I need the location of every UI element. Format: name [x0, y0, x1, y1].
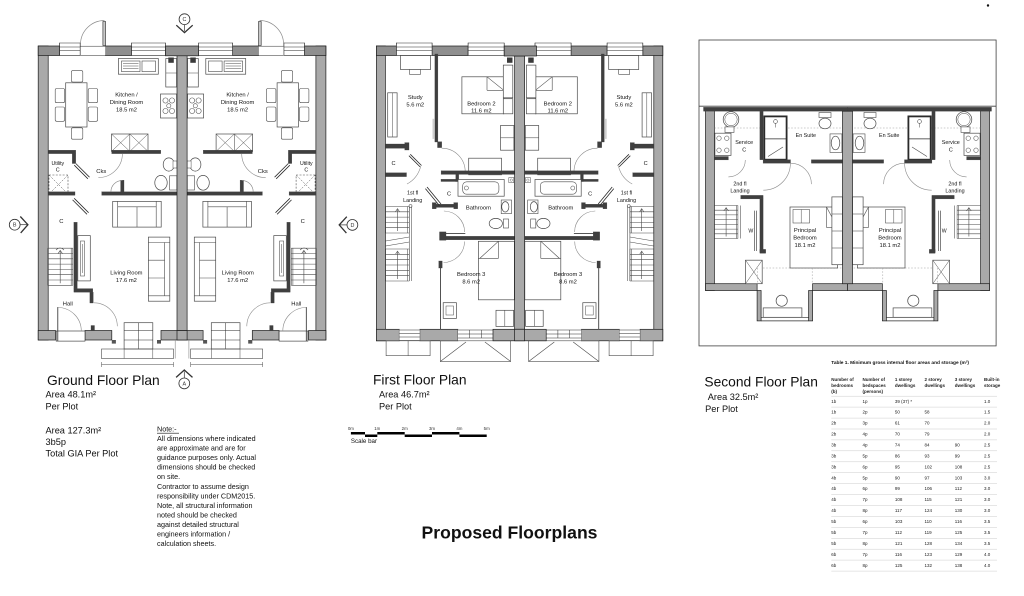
svg-text:4p: 4p [863, 432, 869, 437]
svg-text:Bedroom: Bedroom [878, 236, 902, 242]
svg-text:123: 123 [925, 552, 933, 557]
svg-text:4b: 4b [831, 508, 837, 513]
svg-text:4p: 4p [863, 443, 869, 448]
svg-text:70: 70 [895, 432, 901, 437]
svg-text:Service: Service [942, 140, 960, 146]
svg-text:5p: 5p [863, 475, 869, 480]
svg-text:Landing: Landing [403, 198, 422, 204]
svg-text:calculation sheets.: calculation sheets. [157, 539, 216, 548]
svg-text:1 storey: 1 storey [895, 377, 913, 382]
svg-text:79: 79 [925, 432, 931, 437]
svg-text:5b: 5b [831, 519, 837, 524]
svg-text:84: 84 [925, 443, 931, 448]
svg-text:116: 116 [955, 519, 963, 524]
svg-text:4b: 4b [831, 475, 837, 480]
svg-text:2m: 2m [402, 426, 408, 431]
svg-text:Study: Study [408, 95, 423, 101]
svg-text:Kitchen /: Kitchen / [115, 93, 138, 99]
svg-text:5m: 5m [484, 426, 490, 431]
svg-text:117: 117 [895, 508, 903, 513]
svg-text:121: 121 [955, 497, 963, 502]
svg-text:5b: 5b [831, 541, 837, 546]
svg-text:3p: 3p [863, 421, 869, 426]
svg-text:Bedroom 2: Bedroom 2 [544, 101, 572, 107]
svg-text:8p: 8p [863, 508, 869, 513]
svg-text:124: 124 [925, 508, 933, 513]
svg-text:C: C [949, 147, 953, 153]
svg-text:Living Room: Living Room [110, 271, 142, 277]
svg-text:3m: 3m [429, 426, 435, 431]
svg-text:4.0: 4.0 [984, 552, 991, 557]
svg-text:7p: 7p [863, 530, 869, 535]
svg-text:Principal: Principal [879, 228, 901, 234]
svg-text:93: 93 [925, 453, 931, 458]
svg-text:D: D [350, 223, 354, 229]
svg-text:5.6 m2: 5.6 m2 [615, 102, 633, 108]
svg-text:6p: 6p [863, 486, 869, 491]
svg-text:11.6 m2: 11.6 m2 [471, 109, 492, 115]
svg-text:1.5: 1.5 [984, 410, 991, 415]
svg-text:1b: 1b [831, 399, 837, 404]
svg-text:Hall: Hall [291, 302, 301, 308]
svg-text:Area 48.1m²: Area 48.1m² [46, 390, 97, 400]
svg-text:Bedroom 3: Bedroom 3 [554, 272, 582, 278]
svg-text:90: 90 [955, 443, 961, 448]
svg-text:3.5: 3.5 [984, 530, 991, 535]
svg-text:5p: 5p [863, 453, 869, 458]
svg-text:1.0: 1.0 [984, 399, 991, 404]
svg-text:are approximate and are for: are approximate and are for [157, 444, 246, 453]
svg-text:18.1 m2: 18.1 m2 [795, 243, 816, 249]
svg-text:18.5 m2: 18.5 m2 [227, 108, 248, 114]
svg-text:6p: 6p [863, 519, 869, 524]
svg-text:4m: 4m [456, 426, 462, 431]
svg-text:5b: 5b [831, 530, 837, 535]
svg-text:C: C [644, 161, 648, 167]
svg-text:3.5: 3.5 [984, 541, 991, 546]
svg-text:3.5: 3.5 [984, 519, 991, 524]
svg-text:Total GIA Per Plot: Total GIA Per Plot [46, 449, 119, 459]
svg-text:1m: 1m [374, 426, 380, 431]
svg-text:Note:-: Note:- [157, 425, 177, 434]
svg-text:C: C [304, 168, 308, 174]
svg-text:102: 102 [925, 464, 933, 469]
svg-text:1b: 1b [831, 410, 837, 415]
svg-text:11.6 m2: 11.6 m2 [548, 109, 569, 115]
svg-text:Bedroom 2: Bedroom 2 [467, 101, 495, 107]
svg-text:4b: 4b [831, 497, 837, 502]
svg-text:2.5: 2.5 [984, 453, 991, 458]
svg-text:99: 99 [955, 453, 961, 458]
svg-text:(b): (b) [831, 389, 837, 394]
svg-text:132: 132 [925, 563, 933, 568]
svg-text:6b: 6b [831, 563, 837, 568]
svg-text:2 storey: 2 storey [925, 377, 943, 382]
svg-text:C: C [391, 161, 395, 167]
svg-text:74: 74 [895, 443, 901, 448]
svg-text:bedrooms: bedrooms [831, 383, 853, 388]
svg-text:2.5: 2.5 [984, 443, 991, 448]
svg-text:99: 99 [895, 486, 901, 491]
svg-text:En Suite: En Suite [796, 133, 816, 139]
svg-text:95: 95 [895, 464, 901, 469]
svg-text:engineers information /: engineers information / [157, 530, 230, 539]
svg-text:First Floor Plan: First Floor Plan [373, 373, 467, 388]
svg-text:guidance purposes only. Actual: guidance purposes only. Actual [157, 453, 256, 462]
svg-text:8p: 8p [863, 563, 869, 568]
svg-text:(persons): (persons) [863, 389, 884, 394]
svg-text:39 (37) *: 39 (37) * [895, 399, 913, 404]
svg-text:Per Plot: Per Plot [705, 404, 738, 414]
svg-text:1st fl: 1st fl [621, 191, 632, 197]
svg-text:8.6 m2: 8.6 m2 [559, 279, 577, 285]
svg-text:Note, all structural informati: Note, all structural information [157, 501, 252, 510]
svg-text:110: 110 [925, 519, 933, 524]
svg-text:116: 116 [895, 552, 903, 557]
svg-text:4b: 4b [831, 486, 837, 491]
svg-text:61: 61 [895, 421, 901, 426]
svg-text:17.6 m2: 17.6 m2 [227, 278, 248, 284]
svg-text:All dimensions where indicated: All dimensions where indicated [157, 434, 256, 443]
svg-text:Utility: Utility [300, 161, 313, 167]
svg-text:storage: storage [984, 383, 1001, 388]
svg-text:Landing: Landing [730, 189, 749, 195]
svg-text:86: 86 [895, 453, 901, 458]
svg-text:En Suite: En Suite [879, 133, 899, 139]
svg-text:8.6 m2: 8.6 m2 [462, 279, 480, 285]
svg-text:90: 90 [895, 475, 901, 480]
svg-text:Cks: Cks [96, 169, 106, 175]
svg-text:17.6 m2: 17.6 m2 [116, 278, 137, 284]
svg-text:3.0: 3.0 [984, 475, 991, 480]
svg-text:6b: 6b [831, 552, 837, 557]
svg-text:3b: 3b [831, 464, 837, 469]
svg-text:1p: 1p [863, 399, 869, 404]
svg-text:on site.: on site. [157, 472, 180, 481]
svg-text:Table 1. Minimum gross interna: Table 1. Minimum gross internal floor ar… [831, 360, 969, 366]
svg-text:C: C [588, 192, 592, 198]
svg-text:W: W [748, 228, 753, 234]
svg-text:112: 112 [895, 530, 903, 535]
svg-text:4.0: 4.0 [984, 563, 991, 568]
svg-text:Cks: Cks [258, 169, 268, 175]
svg-text:2b: 2b [831, 432, 837, 437]
svg-text:2.5: 2.5 [984, 464, 991, 469]
svg-text:0m: 0m [348, 426, 354, 431]
svg-text:C: C [447, 192, 451, 198]
svg-text:A: A [182, 381, 186, 387]
svg-text:134: 134 [955, 541, 963, 546]
svg-text:121: 121 [895, 541, 903, 546]
svg-text:125: 125 [895, 563, 903, 568]
svg-text:2.0: 2.0 [984, 421, 991, 426]
svg-text:129: 129 [955, 552, 963, 557]
svg-text:Per Plot: Per Plot [379, 402, 412, 412]
svg-text:Landing: Landing [617, 198, 636, 204]
svg-text:5.6 m2: 5.6 m2 [406, 102, 424, 108]
svg-text:Per Plot: Per Plot [46, 402, 79, 412]
svg-text:103: 103 [895, 519, 903, 524]
svg-text:3b: 3b [831, 443, 837, 448]
svg-text:1st fl: 1st fl [407, 191, 418, 197]
svg-text:Area 32.5m²: Area 32.5m² [708, 392, 759, 402]
svg-text:Hall: Hall [63, 302, 73, 308]
svg-text:2nd fl: 2nd fl [733, 181, 746, 187]
svg-text:C: C [56, 168, 60, 174]
svg-text:Built-in: Built-in [984, 377, 1000, 382]
svg-text:6p: 6p [863, 464, 869, 469]
svg-text:against detailed structural: against detailed structural [157, 520, 239, 529]
svg-text:18.1 m2: 18.1 m2 [880, 243, 901, 249]
svg-text:dimensions should be checked: dimensions should be checked [157, 463, 255, 472]
svg-text:115: 115 [925, 497, 933, 502]
svg-text:50: 50 [895, 410, 901, 415]
svg-text:C: C [59, 219, 63, 225]
svg-text:70: 70 [925, 421, 931, 426]
svg-text:Kitchen /: Kitchen / [226, 93, 249, 99]
svg-text:3b: 3b [831, 453, 837, 458]
svg-text:3.0: 3.0 [984, 486, 991, 491]
svg-text:2nd fl: 2nd fl [948, 181, 961, 187]
svg-text:2p: 2p [863, 410, 869, 415]
svg-text:B: B [13, 223, 17, 229]
svg-text:112: 112 [955, 486, 963, 491]
svg-text:119: 119 [925, 530, 933, 535]
svg-text:138: 138 [955, 563, 963, 568]
svg-text:Dining Room: Dining Room [221, 100, 255, 106]
svg-text:dwellings: dwellings [925, 383, 946, 388]
svg-text:Bathroom: Bathroom [548, 206, 573, 212]
svg-text:18.5 m2: 18.5 m2 [116, 108, 137, 114]
svg-text:W: W [942, 228, 947, 234]
svg-text:8p: 8p [863, 541, 869, 546]
svg-text:bedspaces: bedspaces [863, 383, 887, 388]
svg-text:Ground Floor Plan: Ground Floor Plan [47, 373, 160, 388]
svg-text:Area 46.7m²: Area 46.7m² [379, 390, 430, 400]
svg-text:Landing: Landing [945, 189, 964, 195]
svg-text:Bedroom 3: Bedroom 3 [457, 272, 485, 278]
svg-text:Number of: Number of [831, 377, 854, 382]
svg-text:3.0: 3.0 [984, 497, 991, 502]
svg-text:Bathroom: Bathroom [466, 206, 491, 212]
svg-text:Bedroom: Bedroom [793, 236, 817, 242]
svg-text:dwellings: dwellings [895, 383, 916, 388]
svg-text:Area 127.3m²: Area 127.3m² [46, 426, 102, 436]
svg-text:Principal: Principal [794, 228, 816, 234]
svg-text:103: 103 [955, 475, 963, 480]
svg-text:Number of: Number of [863, 377, 886, 382]
svg-text:130: 130 [955, 508, 963, 513]
svg-text:7p: 7p [863, 497, 869, 502]
svg-text:Utility: Utility [51, 161, 64, 167]
svg-text:97: 97 [925, 475, 931, 480]
svg-text:C: C [301, 219, 305, 225]
svg-text:106: 106 [925, 486, 933, 491]
svg-text:C: C [742, 147, 746, 153]
svg-text:Service: Service [735, 140, 753, 146]
svg-text:dwellings: dwellings [955, 383, 976, 388]
svg-text:2b: 2b [831, 421, 837, 426]
svg-text:Study: Study [616, 95, 631, 101]
svg-text:noted should be checked: noted should be checked [157, 510, 237, 519]
svg-text:3 storey: 3 storey [955, 377, 973, 382]
svg-text:128: 128 [925, 541, 933, 546]
svg-text:Contractor to assume design: Contractor to assume design [157, 482, 249, 491]
svg-text:Scale bar: Scale bar [351, 438, 377, 445]
svg-text:7p: 7p [863, 552, 869, 557]
svg-text:108: 108 [895, 497, 903, 502]
svg-text:responsibility under CDM2015.: responsibility under CDM2015. [157, 491, 255, 500]
svg-text:2.0: 2.0 [984, 432, 991, 437]
svg-text:Second Floor Plan: Second Floor Plan [704, 375, 818, 390]
svg-text:Proposed Floorplans: Proposed Floorplans [422, 523, 598, 543]
svg-text:3.0: 3.0 [984, 508, 991, 513]
svg-text:3b5p: 3b5p [46, 437, 66, 447]
svg-text:Living Room: Living Room [222, 271, 254, 277]
svg-text:125: 125 [955, 530, 963, 535]
svg-text:C: C [183, 17, 187, 23]
svg-text:Dining Room: Dining Room [110, 100, 144, 106]
svg-text:58: 58 [925, 410, 931, 415]
svg-text:108: 108 [955, 464, 963, 469]
